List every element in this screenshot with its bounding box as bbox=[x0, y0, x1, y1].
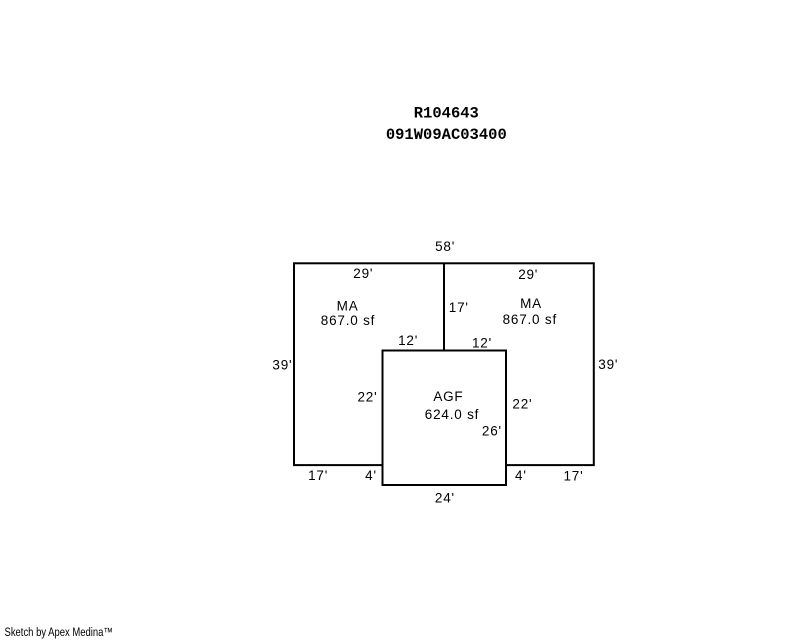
svg-text:867.0 sf: 867.0 sf bbox=[503, 312, 557, 327]
svg-text:17': 17' bbox=[449, 300, 469, 315]
svg-text:Sketch by Apex Medina™: Sketch by Apex Medina™ bbox=[5, 626, 113, 639]
svg-text:17': 17' bbox=[564, 469, 584, 484]
svg-text:MA: MA bbox=[337, 298, 359, 313]
svg-text:12': 12' bbox=[472, 335, 492, 350]
svg-text:22': 22' bbox=[512, 396, 532, 411]
svg-text:624.0 sf: 624.0 sf bbox=[425, 407, 479, 422]
svg-text:17': 17' bbox=[308, 468, 328, 483]
svg-text:4': 4' bbox=[365, 468, 377, 483]
svg-text:39': 39' bbox=[272, 357, 292, 372]
svg-text:MA: MA bbox=[520, 296, 542, 311]
svg-text:12': 12' bbox=[398, 333, 418, 348]
svg-text:R104643: R104643 bbox=[414, 105, 479, 123]
svg-text:29': 29' bbox=[518, 267, 538, 282]
svg-text:867.0 sf: 867.0 sf bbox=[321, 313, 375, 328]
svg-text:091W09AC03400: 091W09AC03400 bbox=[386, 126, 507, 144]
svg-text:29': 29' bbox=[353, 266, 373, 281]
svg-text:24': 24' bbox=[435, 491, 455, 506]
svg-text:58': 58' bbox=[435, 239, 455, 254]
svg-text:39': 39' bbox=[598, 357, 618, 372]
svg-text:AGF: AGF bbox=[433, 389, 463, 404]
svg-text:22': 22' bbox=[358, 389, 378, 404]
svg-text:26': 26' bbox=[482, 423, 502, 438]
svg-text:4': 4' bbox=[515, 468, 527, 483]
